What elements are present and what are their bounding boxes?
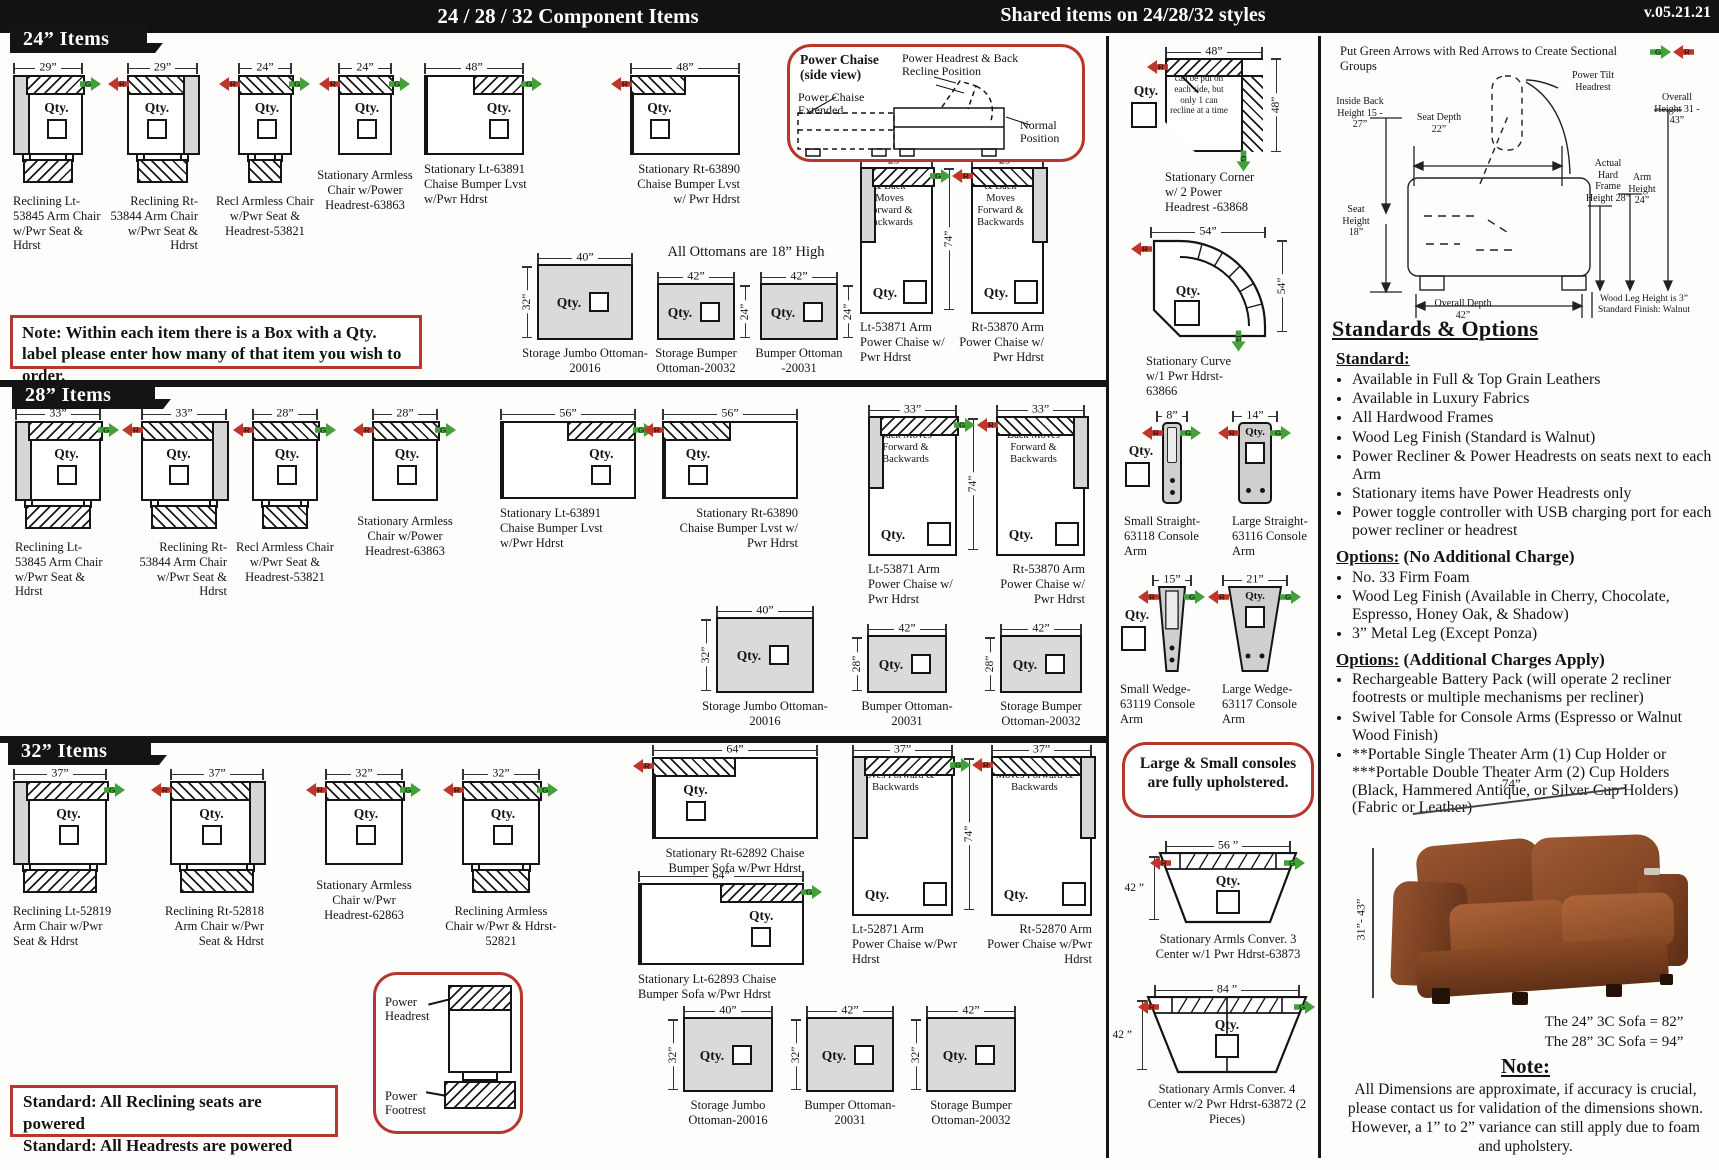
qty-label: Qty. (479, 807, 527, 821)
sofa-height-dim: 31”- 43” (1353, 899, 1368, 941)
back-hatch (880, 416, 959, 436)
qty-label: Qty. (1205, 1018, 1249, 1032)
item-diagram: Qty. (424, 75, 524, 155)
qty-label: Qty. (33, 101, 81, 115)
qty-label: Qty. (672, 783, 720, 797)
red-arrow-letter: R (1684, 48, 1690, 57)
ottoman-diagram: Qty. (537, 264, 633, 340)
item-label: Stationary Lt-63891 Chaise Bumper Lvst w… (424, 162, 536, 206)
footrest-hatch (25, 505, 91, 529)
dim-wood-leg: Wood Leg Height is 3” Standard Finish: W… (1586, 294, 1702, 316)
back-hatch (473, 75, 524, 95)
qty-note-box: Note: Within each item there is a Box wi… (10, 315, 422, 369)
dimension: 74” (967, 418, 979, 550)
item-label: Stationary Corner w/ 2 Power Headrest -6… (1165, 170, 1265, 214)
qty-input-box[interactable] (169, 465, 189, 485)
red-connector-arrow: R (443, 783, 464, 797)
ottoman-diagram: Qty. (926, 1017, 1016, 1092)
item-label: Storage Jumbo Ottoman-20016 (699, 699, 831, 729)
options-group-heading: Options: (Additional Charges Apply) (1336, 650, 1718, 670)
dimension: 74” (943, 168, 955, 310)
footrest-hatch (23, 869, 97, 893)
qty-label: Qty. (737, 909, 785, 923)
back-hatch (991, 756, 1082, 776)
item-diagram: Qty. (325, 781, 403, 865)
qty-input-box[interactable] (589, 292, 609, 312)
item-label: Large Straight-63116 Console Arm (1232, 514, 1320, 558)
dimension: 33” (141, 408, 227, 421)
option-bullet: Stationary items have Power Headrests on… (1352, 485, 1718, 503)
option-bullet: Wood Leg Finish (Standard is Walnut) (1352, 429, 1718, 447)
qty-input-box[interactable] (1245, 606, 1265, 628)
back-hatch (996, 416, 1075, 436)
back-hatch (872, 167, 935, 187)
sofa-size-notes: The 24” 3C Sofa = 82” The 28” 3C Sofa = … (1520, 1012, 1708, 1053)
arm-rest (1080, 756, 1096, 839)
qty-label: Qty. (1166, 284, 1210, 298)
item-diagram: Qty. (652, 757, 818, 839)
red-connector-arrow: R (1147, 60, 1168, 74)
red-connector-arrow: R (353, 423, 374, 437)
green-connector-arrow: G (801, 885, 822, 899)
header-version: v.05.21.21 (1644, 4, 1711, 22)
back-hatch (170, 781, 251, 801)
arm-rest (212, 421, 229, 501)
qty-input-box[interactable] (688, 465, 708, 485)
qty-input-box[interactable] (1121, 626, 1146, 651)
item-label: Stationary Curve w/1 Pwr Hdrst-63866 (1146, 354, 1242, 398)
footrest-hatch (472, 869, 530, 893)
item-label: Stationary Armless Chair w/Power Headres… (309, 168, 421, 212)
item-diagram: Qty. (630, 75, 740, 155)
standards-options-block: Standards & Options Standard:Available i… (1332, 316, 1718, 820)
dimension: 32” (790, 1019, 802, 1090)
seat-connector (462, 1073, 498, 1081)
section-rule-28 (0, 380, 1106, 387)
item-label: Bumper Ottoman -20031 (743, 346, 855, 376)
back-hatch (127, 75, 185, 95)
back-hatch (567, 421, 636, 441)
item-label: Stationary Rt-63890 Chaise Bumper Lvst w… (670, 506, 798, 550)
option-bullet: Rechargeable Battery Pack (will operate … (1352, 671, 1718, 707)
ottoman-diagram: Qty. (1000, 635, 1082, 693)
dimension: 29” (13, 62, 83, 75)
qty-input-box[interactable] (927, 522, 951, 546)
dimension: 24” (238, 62, 292, 75)
qty-input-box[interactable] (356, 825, 376, 845)
qty-label: Qty. (978, 286, 1014, 300)
dimension: 48” (630, 62, 740, 75)
qty-label: Qty. (636, 101, 684, 115)
console-dot (1246, 488, 1251, 493)
item-label: Stationary Armls Conver. 3 Center w/1 Pw… (1146, 932, 1310, 962)
qty-input-box[interactable] (751, 927, 771, 947)
qty-input-box[interactable] (1174, 300, 1200, 326)
option-bullet: Power Recliner & Power Headrests on seat… (1352, 448, 1718, 484)
power-chaise-sideview-box: Power Chaise (side view) Power Headrest … (787, 44, 1085, 162)
red-connector-arrow: R (108, 77, 129, 91)
footrest-hatch (23, 159, 73, 183)
dimension: 28” (984, 637, 996, 691)
item-label: Reclining Rt-53844 Arm Chair w/Pwr Seat … (129, 540, 227, 599)
column-divider-right (1318, 36, 1321, 1158)
footrest-hatch (151, 505, 217, 529)
qty-input-box[interactable] (59, 825, 79, 845)
qty-input-box[interactable] (47, 119, 67, 139)
item-diagram: Qty. (462, 781, 540, 865)
option-bullet: Swivel Table for Console Arms (Espresso … (1352, 709, 1718, 745)
item-label: Large Wedge-63117 Console Arm (1222, 682, 1310, 726)
item-diagram: Qty. (141, 421, 227, 501)
item-label: Storage Jumbo Ottoman-20016 (666, 1098, 790, 1128)
back-hatch (662, 421, 731, 441)
item-diagram: Power Seat & Back Moves Forward & Backwa… (991, 756, 1092, 916)
item-label: Recl Armless Chair w/Pwr Seat & Headrest… (226, 540, 344, 584)
qty-input-box[interactable] (923, 882, 947, 906)
power-headrest-label: Power Headrest (385, 995, 445, 1024)
section-label-24: 24” Items (10, 26, 147, 53)
qty-input-box[interactable] (975, 1045, 995, 1065)
red-connector-arrow: R (1673, 45, 1694, 59)
item-label: Storage Jumbo Ottoman-20016 (520, 346, 650, 376)
item-label: Rt-52870 Arm Power Chaise w/Pwr Hdrst (986, 922, 1092, 966)
item-label: Stationary Armls Conver. 4 Center w/2 Pw… (1142, 1082, 1312, 1126)
item-diagram: Qty. (338, 75, 392, 155)
qty-label: Qty. (1235, 591, 1275, 602)
ottoman-diagram: Qty. (657, 283, 735, 340)
qty-label: Qty. (1206, 874, 1250, 888)
qty-input-box[interactable] (769, 645, 789, 665)
item-diagram: Qty. (372, 421, 438, 501)
arm-rest (249, 781, 266, 865)
power-chaise-sketch (792, 75, 1080, 159)
usb-control-panel (1644, 868, 1660, 875)
red-connector-arrow: R (611, 77, 632, 91)
item-label: Lt-53871 Arm Power Chaise w/ Pwr Hdrst (868, 562, 968, 606)
seat-divider (502, 423, 504, 497)
option-bullet: No. 33 Firm Foam (1352, 569, 1718, 587)
qty-label: Qty. (1127, 84, 1165, 98)
standard-powered-line2: Standard: All Headrests are powered (23, 1135, 325, 1157)
ottoman-diagram: Qty. (867, 635, 947, 693)
qty-input-box[interactable] (493, 825, 513, 845)
green-connector-arrow: G (521, 77, 542, 91)
power-chaise-title-line: Power Chaise (800, 52, 879, 67)
red-connector-arrow: R (306, 783, 327, 797)
column-divider-shared (1106, 36, 1109, 1158)
item-label: Rt-53870 Arm Power Chaise w/ Pwr Hdrst (985, 562, 1085, 606)
item-diagram: Qty. (13, 781, 107, 865)
qty-label: Qty. (45, 807, 93, 821)
console-dot (1260, 488, 1265, 493)
qty-input-box[interactable] (854, 1045, 874, 1065)
sofa-width-dim: 74” (1502, 776, 1521, 792)
back-hatch (971, 167, 1034, 187)
standard-powered-box: Standard: All Reclining seats are powere… (10, 1085, 338, 1137)
qty-input-box[interactable] (489, 119, 509, 139)
item-label: Stationary Armless Chair w/Power Headres… (346, 514, 464, 558)
red-connector-arrow: R (122, 423, 143, 437)
item-label: Rt-53870 Arm Power Chaise w/ Pwr Hdrst (956, 320, 1044, 364)
seat-frame (448, 1009, 512, 1073)
ottoman-diagram: Qty. (683, 1017, 773, 1092)
qty-input-box[interactable] (1245, 442, 1265, 464)
dimension: 56” (662, 408, 798, 421)
dim-seat-height: Seat Height 18” (1334, 204, 1378, 239)
red-connector-arrow: R (952, 169, 973, 183)
qty-input-box[interactable] (1062, 882, 1086, 906)
qty-label: Qty. (43, 447, 91, 461)
qty-label: Qty. (475, 101, 523, 115)
item-label: Reclining Armless Chair w/Pwr & Hdrst-52… (445, 904, 557, 948)
item-label: Stationary Rt-63890 Chaise Bumper Lvst w… (628, 162, 740, 206)
qty-label: Qty. (875, 528, 911, 542)
qty-label: Qty. (859, 888, 895, 902)
dimension: 64” (638, 870, 804, 883)
dimension: 32” (462, 768, 540, 781)
green-connector-arrow: G (1180, 426, 1201, 440)
header-title: 24 / 28 / 32 Component Items (398, 4, 738, 29)
dimension: 37” (170, 768, 264, 781)
qty-input-box[interactable] (650, 119, 670, 139)
back-hatch (238, 75, 294, 95)
options-group: Options: (Additional Charges Apply)Recha… (1332, 650, 1718, 817)
headrest-hatch (448, 985, 512, 1011)
back-hatch (630, 75, 686, 95)
option-bullet: **Portable Single Theater Arm (1) Cup Ho… (1352, 746, 1718, 817)
console-window (1167, 427, 1177, 463)
back-hatch (26, 75, 85, 95)
qty-input-box[interactable] (397, 465, 417, 485)
red-connector-arrow: R (233, 423, 254, 437)
sofa-leg (1512, 992, 1528, 1005)
item-label: Stationary Lt-63891 Chaise Bumper Lvst w… (500, 506, 628, 550)
seat-divider (426, 77, 428, 153)
qty-input-box[interactable] (911, 654, 931, 674)
qty-input-box[interactable] (202, 825, 222, 845)
item-diagram: Qty. (252, 421, 318, 501)
back-hatch (652, 757, 736, 777)
qty-input-box[interactable] (147, 119, 167, 139)
qty-input-box[interactable] (732, 1045, 752, 1065)
dimension: 54” (1276, 240, 1288, 332)
item-label: Storage Bumper Ottoman-20032 (909, 1098, 1033, 1128)
back-hatch (372, 421, 440, 441)
option-bullet: Available in Full & Top Grain Leathers (1352, 371, 1718, 389)
item-diagram: Qty. (127, 75, 198, 155)
ottoman-diagram: Qty. (806, 1017, 894, 1092)
dimension: 32” (521, 266, 533, 338)
item-label: Stationary Lt-62893 Chaise Bumper Sofa w… (638, 972, 788, 1002)
corner-diagram: Reclining items can be put on each side,… (1165, 58, 1263, 152)
item-label: Storage Bumper Ottoman-20032 (983, 699, 1099, 729)
qty-input-box[interactable] (1014, 280, 1038, 304)
qty-label: Qty. (694, 1049, 730, 1063)
option-bullet: All Hardwood Frames (1352, 409, 1718, 427)
options-group-heading: Options: (No Additional Charge) (1336, 547, 1718, 567)
item-label: Small Straight-63118 Console Arm (1124, 514, 1212, 558)
back-hatch (252, 421, 320, 441)
dimension: 32” (910, 1019, 922, 1090)
qty-label: Qty. (577, 447, 625, 461)
qty-input-box[interactable] (277, 465, 297, 485)
back-hatch (28, 421, 103, 441)
qty-label: Qty. (998, 888, 1034, 902)
side-hatch (1241, 75, 1267, 156)
item-diagram: Qty. (13, 75, 83, 155)
item-diagram: Qty. (15, 421, 101, 501)
option-bullet: Available in Luxury Fabrics (1352, 390, 1718, 408)
sofa-size-28: The 28” 3C Sofa = 94” (1520, 1032, 1708, 1052)
qty-input-box[interactable] (700, 302, 720, 322)
qty-label: Qty. (188, 807, 236, 821)
qty-input-box[interactable] (1215, 1034, 1239, 1058)
section-rule-32 (0, 736, 1106, 743)
dimension: 74” (963, 758, 975, 910)
green-connector-arrow: G (1280, 590, 1301, 604)
consoles-note-box: Large & Small consoles are fully upholst… (1122, 742, 1314, 818)
dimension: 24” (842, 285, 854, 338)
qty-input-box[interactable] (903, 280, 927, 304)
item-label: Reclining Rt-53844 Arm Chair w/Pwr Seat … (102, 194, 198, 253)
dim-inside-back: Inside Back Height 15 - 27” (1334, 96, 1386, 131)
item-diagram: Power Seat & Back Moves Forward & Backwa… (868, 416, 957, 556)
green-connector-arrow: G (1237, 151, 1251, 172)
qty-input-box[interactable] (357, 119, 377, 139)
item-diagram: Power Seat & Back Moves Forward & Backwa… (852, 756, 953, 916)
ottoman-diagram: Qty. (716, 617, 814, 693)
footrest-hatch (262, 505, 308, 529)
ottoman-diagram: Qty. (760, 283, 838, 340)
item-label: Storage Bumper Ottoman-20032 (640, 346, 752, 376)
red-connector-arrow: R (1138, 590, 1159, 604)
red-connector-arrow: R (319, 77, 340, 91)
standards-title: Standards & Options (1332, 316, 1718, 342)
item-diagram: Power Seat & Back Moves Forward & Backwa… (996, 416, 1085, 556)
qty-label: Qty. (133, 101, 181, 115)
qty-label: Qty. (263, 447, 311, 461)
qty-label: Qty. (816, 1049, 852, 1063)
sofa-leg (1432, 988, 1450, 1004)
qty-label: Qty. (342, 807, 390, 821)
qty-input-box[interactable] (686, 801, 706, 821)
component-order-form: 24 / 28 / 32 Component Items Shared item… (0, 0, 1719, 1170)
dimension: 32” (667, 1019, 679, 1090)
sofa-size-24: The 24” 3C Sofa = 82” (1520, 1012, 1708, 1032)
console-straight-diagram (1162, 422, 1182, 504)
options-group: Standard:Available in Full & Top Grain L… (1332, 349, 1718, 540)
dimension: 29” (127, 62, 198, 75)
qty-label: Qty. (873, 658, 909, 672)
dimension: 64” (652, 744, 818, 757)
footrest-hatch (180, 869, 254, 893)
qty-input-box[interactable] (57, 465, 77, 485)
sofa-leg (1606, 984, 1622, 997)
dimension: 24” (338, 62, 392, 75)
console-wedge-diagram (1158, 586, 1186, 672)
dimension: 28” (252, 408, 318, 421)
sofa-leg (1660, 974, 1673, 985)
qty-label: Qty. (1118, 608, 1156, 622)
qty-input-box[interactable] (1131, 102, 1157, 128)
qty-label: Qty. (551, 296, 587, 310)
item-label: Lt-53871 Arm Power Chaise w/ Pwr Hdrst (860, 320, 948, 364)
dimension: 48” (424, 62, 524, 75)
seat-divider (640, 885, 642, 963)
section-label-28: 28” Items (12, 382, 155, 409)
item-diagram: Qty. (662, 421, 798, 499)
item-label: Bumper Ottoman-20031 (789, 1098, 911, 1128)
sofa-photo (1392, 836, 1690, 1008)
qty-input-box[interactable] (257, 119, 277, 139)
standard-powered-line1: Standard: All Reclining seats are powere… (23, 1091, 325, 1135)
console-dot (1170, 490, 1175, 495)
item-diagram: Qty. (638, 883, 804, 965)
item-label: Recl Armless Chair w/Pwr Seat & Headrest… (209, 194, 321, 238)
dimension: 32” (325, 768, 403, 781)
section-label-32: 32” Items (8, 738, 151, 765)
item-label: Small Wedge-63119 Console Arm (1120, 682, 1208, 726)
qty-input-box[interactable] (1125, 462, 1150, 487)
arm-rest (1073, 416, 1089, 489)
qty-label: Qty. (937, 1049, 973, 1063)
dim-power-tilt: Power Tilt Headrest (1558, 70, 1628, 93)
qty-label: Qty. (765, 306, 801, 320)
item-label: Reclining Rt-52818 Arm Chair w/Pwr Seat … (164, 904, 264, 948)
qty-input-box[interactable] (591, 465, 611, 485)
back-hatch (720, 883, 804, 903)
standards-groups: Standard:Available in Full & Top Grain L… (1332, 349, 1718, 817)
red-connector-arrow: R (219, 77, 240, 91)
options-group-heading: Standard: (1336, 349, 1718, 369)
ottoman-height-note: All Ottomans are 18” High (664, 244, 828, 261)
footrest-hatch (248, 159, 282, 183)
qty-input-box[interactable] (1045, 654, 1065, 674)
qty-label: Qty. (867, 286, 903, 300)
green-arrow-letter: G (1655, 48, 1661, 57)
dimension: 28” (851, 637, 863, 691)
option-bullet: Power toggle controller with USB chargin… (1352, 504, 1718, 540)
red-connector-arrow: R (151, 783, 172, 797)
dimension: 56” (500, 408, 636, 421)
item-label: Bumper Ottoman-20031 (850, 699, 964, 729)
note-text: All Dimensions are approximate, if accur… (1338, 1081, 1713, 1157)
page-header: 24 / 28 / 32 Component Items Shared item… (0, 0, 1719, 33)
item-label: Reclining Lt-52819 Arm Chair w/Pwr Seat … (13, 904, 113, 948)
qty-label: Qty. (731, 649, 767, 663)
qty-input-box[interactable] (1216, 890, 1240, 914)
dimension: 48” (1270, 58, 1282, 152)
green-connector-arrow: G (1650, 45, 1671, 59)
qty-label: Qty. (383, 447, 431, 461)
dim-seat-depth: Seat Depth 22” (1410, 112, 1468, 135)
green-connector-arrow: G (1184, 590, 1205, 604)
back-hatch (141, 421, 214, 441)
qty-input-box[interactable] (1055, 522, 1079, 546)
item-label: Lt-52871 Arm Power Chaise w/Pwr Hdrst (852, 922, 958, 966)
item-diagram: Qty. (238, 75, 292, 155)
qty-input-box[interactable] (803, 302, 823, 322)
back-hatch (338, 75, 394, 95)
footrest-hatch (137, 159, 188, 183)
header-shared-title: Shared items on 24/28/32 styles (968, 4, 1298, 27)
red-connector-arrow: R (977, 418, 998, 432)
item-label: Reclining Lt-53845 Arm Chair w/Pwr Seat … (15, 540, 113, 599)
qty-label: Qty. (662, 306, 698, 320)
qty-label: Qty. (243, 101, 291, 115)
power-parts-box: Power Headrest Power Footrest (373, 972, 523, 1134)
dimension: 33” (15, 408, 101, 421)
